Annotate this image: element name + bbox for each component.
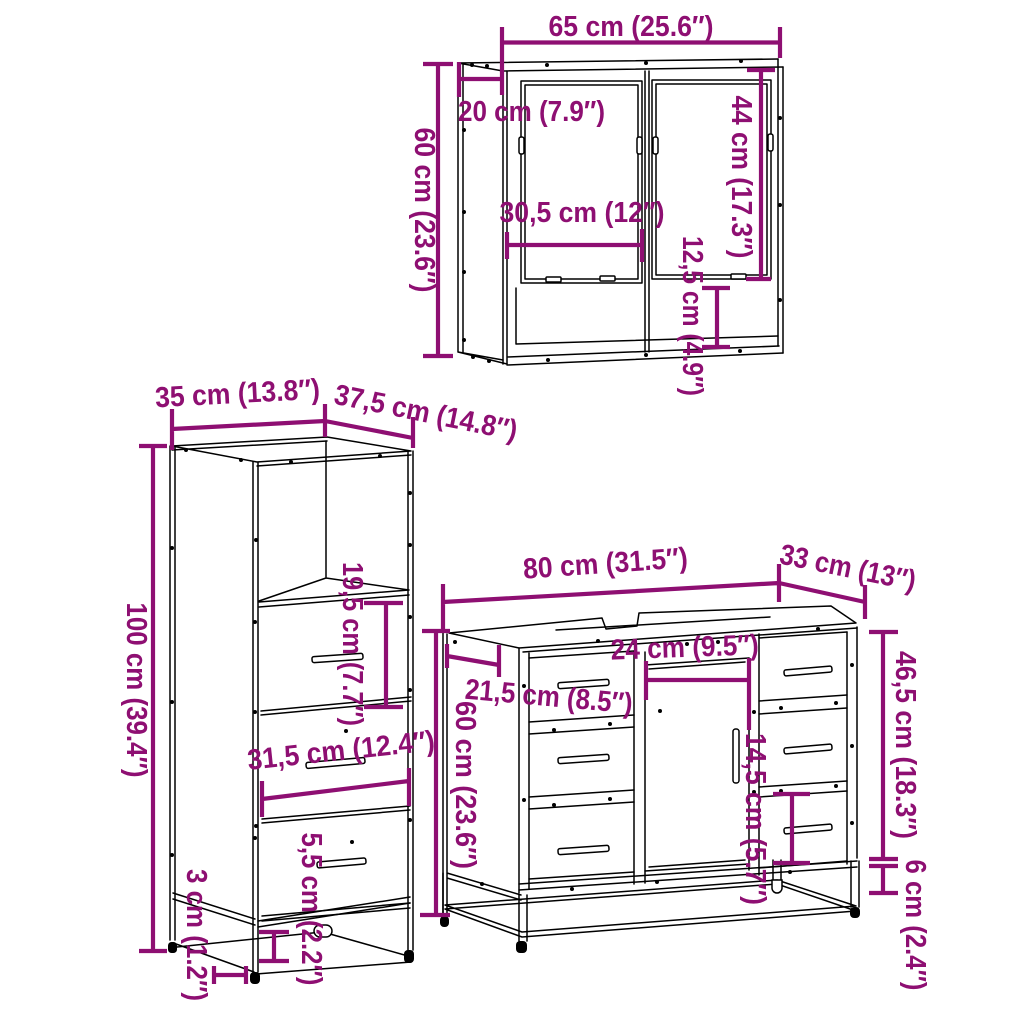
svg-text:14,5 cm (5.7″): 14,5 cm (5.7″) — [739, 733, 771, 905]
svg-text:44 cm (17.3″): 44 cm (17.3″) — [725, 96, 757, 259]
svg-text:46,5 cm (18.3″): 46,5 cm (18.3″) — [889, 651, 921, 839]
svg-text:5,5 cm (2.2″): 5,5 cm (2.2″) — [295, 833, 327, 986]
svg-text:3 cm (1.2″): 3 cm (1.2″) — [180, 869, 212, 1001]
svg-text:60 cm (23.6″): 60 cm (23.6″) — [408, 128, 440, 293]
svg-text:12,5 cm (4.9″): 12,5 cm (4.9″) — [676, 236, 708, 396]
svg-text:6 cm (2.4″): 6 cm (2.4″) — [899, 860, 931, 991]
svg-text:65 cm (25.6″): 65 cm (25.6″) — [549, 11, 714, 43]
svg-text:60 cm (23.6″): 60 cm (23.6″) — [449, 701, 481, 869]
svg-text:100 cm (39.4″): 100 cm (39.4″) — [120, 603, 152, 778]
svg-text:30,5 cm (12″): 30,5 cm (12″) — [500, 197, 665, 229]
svg-text:24 cm (9.5″): 24 cm (9.5″) — [610, 629, 759, 666]
svg-text:19,5 cm (7.7″): 19,5 cm (7.7″) — [336, 562, 368, 726]
svg-text:20 cm (7.9″): 20 cm (7.9″) — [458, 96, 605, 128]
